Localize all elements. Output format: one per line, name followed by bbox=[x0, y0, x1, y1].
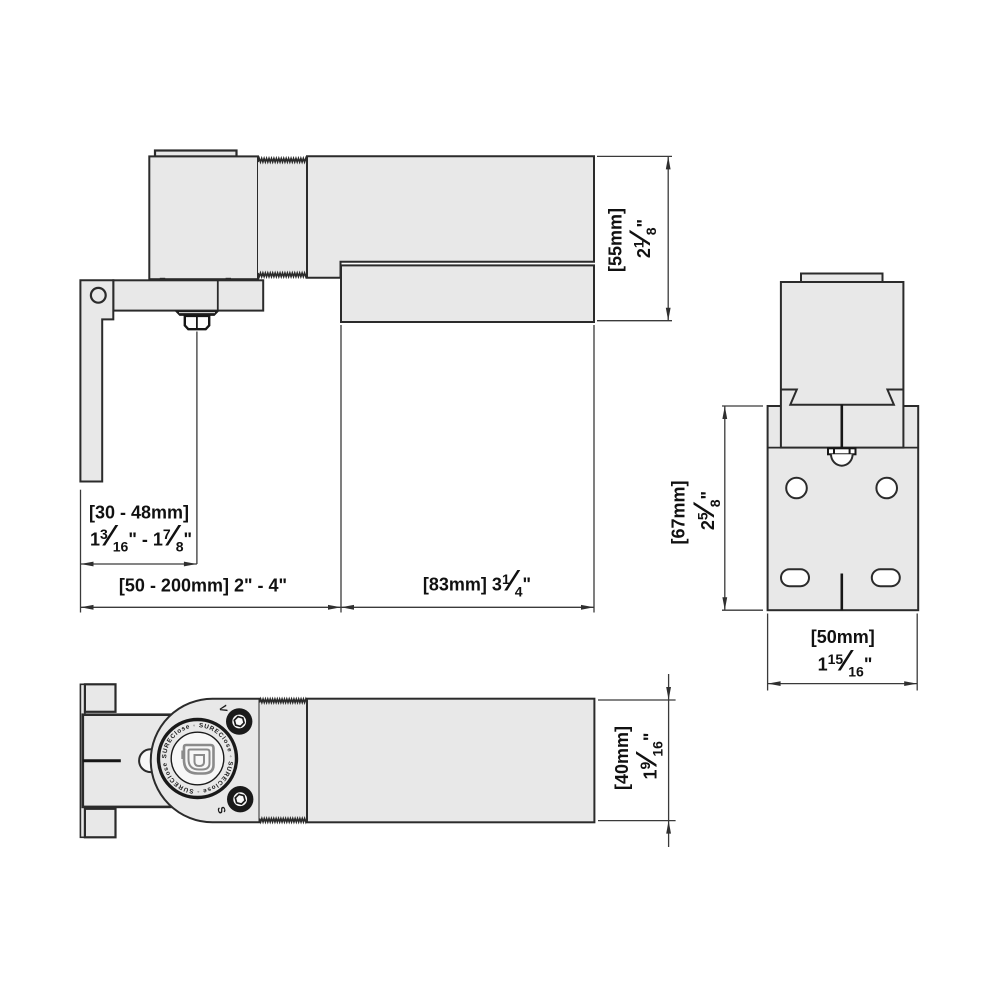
svg-text:[40mm]: [40mm] bbox=[612, 726, 632, 790]
svg-text:[67mm]: [67mm] bbox=[669, 480, 689, 544]
svg-text:[50 - 200mm] 2" - 4": [50 - 200mm] 2" - 4" bbox=[119, 576, 287, 596]
svg-text:[55mm]: [55mm] bbox=[606, 208, 626, 272]
